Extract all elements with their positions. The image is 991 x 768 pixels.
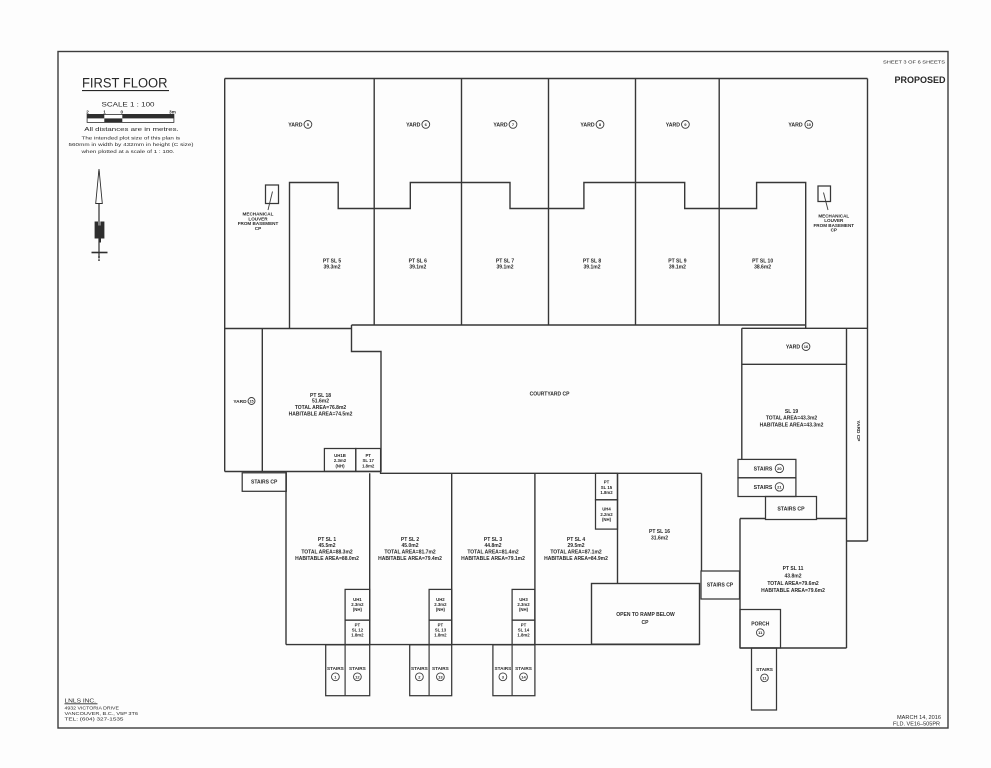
svg-text:TOTAL AREA=79.6m2: TOTAL AREA=79.6m2 <box>767 581 819 587</box>
svg-text:YARD: YARD <box>788 122 802 128</box>
svg-text:The intended plot size of this: The intended plot size of this plan is <box>82 136 181 142</box>
svg-text:39.1m2: 39.1m2 <box>669 264 686 270</box>
svg-text:STAIRS CP: STAIRS CP <box>777 507 805 513</box>
svg-text:560mm in width by 432mm in hei: 560mm in width by 432mm in height (C siz… <box>69 142 195 148</box>
svg-text:31.6m2: 31.6m2 <box>651 536 668 542</box>
svg-text:(NH): (NH) <box>353 607 363 612</box>
svg-text:STAIRS: STAIRS <box>515 666 532 671</box>
svg-text:YARD: YARD <box>233 399 247 405</box>
svg-text:CP: CP <box>255 226 261 231</box>
svg-text:PORCH: PORCH <box>751 622 769 628</box>
svg-text:PT SL 4: PT SL 4 <box>567 537 585 543</box>
svg-text:10: 10 <box>807 122 812 127</box>
svg-text:STAIRS CP: STAIRS CP <box>707 583 734 589</box>
svg-text:YARD: YARD <box>580 122 594 128</box>
svg-text:PT SL 2: PT SL 2 <box>401 537 419 543</box>
svg-text:1.8m2: 1.8m2 <box>362 463 375 468</box>
svg-text:43.8m2: 43.8m2 <box>785 574 802 580</box>
svg-text:STAIRS: STAIRS <box>432 666 449 671</box>
svg-text:STAIRS: STAIRS <box>754 467 773 473</box>
svg-text:HABITABLE AREA=74.5m2: HABITABLE AREA=74.5m2 <box>289 411 353 417</box>
svg-text:12: 12 <box>355 674 360 679</box>
svg-text:STAIRS CP: STAIRS CP <box>251 480 278 486</box>
svg-text:HABITABLE AREA=88.0m2: HABITABLE AREA=88.0m2 <box>295 556 359 562</box>
svg-text:All distances are in metres.: All distances are in metres. <box>84 127 179 133</box>
svg-text:COURTYARD CP: COURTYARD CP <box>530 392 570 398</box>
svg-text:SCALE 1 : 100: SCALE 1 : 100 <box>102 102 155 109</box>
svg-text:1.8m2: 1.8m2 <box>351 633 364 638</box>
svg-text:TOTAL AREA=81.4m2: TOTAL AREA=81.4m2 <box>467 550 519 556</box>
svg-text:0: 0 <box>121 109 124 114</box>
svg-text:when plotted at a scale of 1 :: when plotted at a scale of 1 : 100. <box>82 149 175 155</box>
svg-text:FLD. VE16–505PR: FLD. VE16–505PR <box>893 721 940 727</box>
svg-text:21: 21 <box>777 484 782 489</box>
svg-text:STAIRS: STAIRS <box>756 667 773 672</box>
svg-text:YARD: YARD <box>786 345 800 351</box>
svg-text:YARD: YARD <box>666 122 680 128</box>
svg-text:(NH): (NH) <box>519 607 529 612</box>
svg-text:44.8m2: 44.8m2 <box>485 543 502 549</box>
svg-text:YARD CP: YARD CP <box>855 420 861 442</box>
svg-text:TOTAL AREA=88.3m2: TOTAL AREA=88.3m2 <box>301 550 353 556</box>
svg-text:YARD: YARD <box>493 122 507 128</box>
svg-text:39.1m2: 39.1m2 <box>409 264 426 270</box>
svg-text:1: 1 <box>103 109 106 114</box>
svg-text:STAIRS: STAIRS <box>494 666 511 671</box>
svg-text:HABITABLE AREA=79.1m2: HABITABLE AREA=79.1m2 <box>461 556 525 562</box>
svg-text:13: 13 <box>438 674 443 679</box>
svg-text:(NH): (NH) <box>436 607 446 612</box>
svg-text:STAIRS: STAIRS <box>411 666 428 671</box>
svg-text:(NH): (NH) <box>335 463 345 468</box>
svg-text:STAIRS: STAIRS <box>349 666 366 671</box>
svg-text:YARD: YARD <box>288 122 302 128</box>
svg-text:SHEET 3 OF 6 SHEETS: SHEET 3 OF 6 SHEETS <box>883 60 945 65</box>
svg-text:51.6m2: 51.6m2 <box>312 399 329 405</box>
svg-text:16: 16 <box>804 344 809 349</box>
svg-text:HABITABLE AREA=79.4m2: HABITABLE AREA=79.4m2 <box>378 556 442 562</box>
svg-text:2: 2 <box>86 109 89 114</box>
svg-text:PROPOSED: PROPOSED <box>895 75 946 85</box>
svg-text:OPEN TO RAMP BELOW: OPEN TO RAMP BELOW <box>616 612 675 618</box>
svg-text:38.6m2: 38.6m2 <box>754 264 771 270</box>
svg-text:HABITABLE AREA=84.9m2: HABITABLE AREA=84.9m2 <box>544 556 608 562</box>
svg-text:1.8m2: 1.8m2 <box>517 633 530 638</box>
svg-text:1.8m2: 1.8m2 <box>600 490 613 495</box>
svg-text:VANCOUVER, B.C., V5P 3T6: VANCOUVER, B.C., V5P 3T6 <box>65 711 139 717</box>
svg-text:29.5m2: 29.5m2 <box>568 543 585 549</box>
svg-text:TEL: (604) 327-1535: TEL: (604) 327-1535 <box>65 717 124 723</box>
svg-text:FIRST FLOOR: FIRST FLOOR <box>82 76 168 91</box>
svg-text:4932 VICTORIA DRIVE: 4932 VICTORIA DRIVE <box>65 706 120 712</box>
svg-text:(NH): (NH) <box>602 517 612 522</box>
svg-text:45.5m2: 45.5m2 <box>319 543 336 549</box>
svg-text:15: 15 <box>249 399 253 403</box>
svg-text:14: 14 <box>521 674 526 679</box>
svg-text:PT SL 1: PT SL 1 <box>318 537 336 543</box>
svg-text:45.0m2: 45.0m2 <box>402 543 419 549</box>
svg-text:TOTAL AREA=76.8m2: TOTAL AREA=76.8m2 <box>295 405 347 411</box>
svg-text:MARCH 14, 2016: MARCH 14, 2016 <box>897 715 941 721</box>
svg-text:YARD: YARD <box>406 122 420 128</box>
svg-text:STAIRS: STAIRS <box>754 485 773 491</box>
svg-text:20: 20 <box>777 466 782 471</box>
svg-text:HABITABLE AREA=43.3m2: HABITABLE AREA=43.3m2 <box>760 422 824 428</box>
svg-text:1.8m2: 1.8m2 <box>434 633 447 638</box>
svg-text:TOTAL AREA=87.1m2: TOTAL AREA=87.1m2 <box>550 550 602 556</box>
svg-text:HABITABLE AREA=79.6m2: HABITABLE AREA=79.6m2 <box>761 588 825 594</box>
svg-text:PT SL 16: PT SL 16 <box>649 529 670 535</box>
svg-text:39.3m2: 39.3m2 <box>324 264 341 270</box>
svg-text:PT SL 3: PT SL 3 <box>484 537 502 543</box>
svg-text:3m: 3m <box>169 109 176 114</box>
svg-text:CP: CP <box>831 228 837 233</box>
svg-text:TOTAL AREA=81.7m2: TOTAL AREA=81.7m2 <box>384 550 436 556</box>
svg-text:TOTAL AREA=43.3m2: TOTAL AREA=43.3m2 <box>766 416 818 422</box>
svg-text:CP: CP <box>642 620 650 626</box>
svg-text:39.1m2: 39.1m2 <box>584 264 601 270</box>
svg-text:PT SL 11: PT SL 11 <box>783 566 804 572</box>
svg-text:SL 19: SL 19 <box>785 409 798 415</box>
svg-text:STAIRS: STAIRS <box>327 666 344 671</box>
svg-text:39.1m2: 39.1m2 <box>497 264 514 270</box>
